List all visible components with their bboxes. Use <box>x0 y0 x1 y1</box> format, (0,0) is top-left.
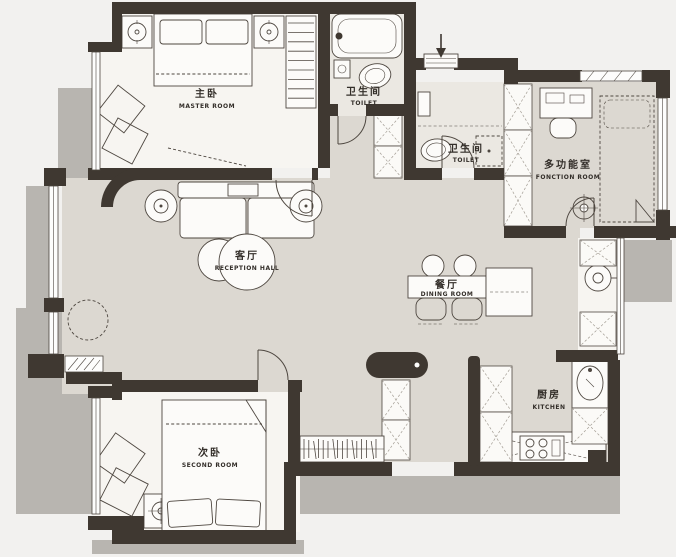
pillow <box>215 499 260 527</box>
pillow <box>160 20 202 44</box>
pillow <box>206 20 248 44</box>
washbasin <box>334 60 350 78</box>
label-second-zh: 次卧 <box>198 446 222 459</box>
label-toilet1-en: TOILET <box>351 100 378 107</box>
label-dining-en: DINING ROOM <box>421 291 474 298</box>
tub-faucet-icon <box>336 33 343 40</box>
stool <box>454 255 476 277</box>
label-second-en: SECOND ROOM <box>182 462 238 469</box>
desk-chair <box>550 118 576 138</box>
label-reception-zh: 客厅 <box>234 249 259 262</box>
sliding-door-hatch <box>65 356 103 372</box>
master-balcony-floor <box>94 48 150 174</box>
washbasin <box>418 92 430 116</box>
label-reception-en: RECEPTION HALL <box>215 265 279 272</box>
sofa-tray <box>228 184 258 196</box>
label-kitchen-zh: 厨房 <box>537 388 561 401</box>
side-table-icon <box>290 190 322 222</box>
bookshelf <box>300 436 384 462</box>
label-master-zh: 主卧 <box>195 87 219 100</box>
window-function-top <box>580 71 642 81</box>
stove-icon <box>520 436 564 460</box>
coffee-table <box>219 234 275 290</box>
stool <box>422 255 444 277</box>
label-toilet2-en: TOILET <box>453 157 480 164</box>
label-dining-zh: 餐厅 <box>434 278 459 291</box>
label-toilet2-zh: 卫生间 <box>448 142 484 155</box>
side-table-icon <box>145 190 177 222</box>
master-wardrobe <box>286 16 316 108</box>
floor-plan: 主卧 MASTER ROOM 卫生间 TOILET 卫生间 TOILET 多功能… <box>0 0 676 557</box>
pillow <box>167 498 213 527</box>
label-function-zh: 多功能室 <box>544 158 592 171</box>
sofa-seat <box>180 198 246 238</box>
floor-plan-page: 主卧 MASTER ROOM 卫生间 TOILET 卫生间 TOILET 多功能… <box>0 0 676 557</box>
label-toilet1-zh: 卫生间 <box>346 85 382 98</box>
label-master-en: MASTER ROOM <box>179 103 235 110</box>
label-kitchen-en: KITCHEN <box>532 404 565 411</box>
label-function-en: FONCTION ROOM <box>536 174 600 181</box>
